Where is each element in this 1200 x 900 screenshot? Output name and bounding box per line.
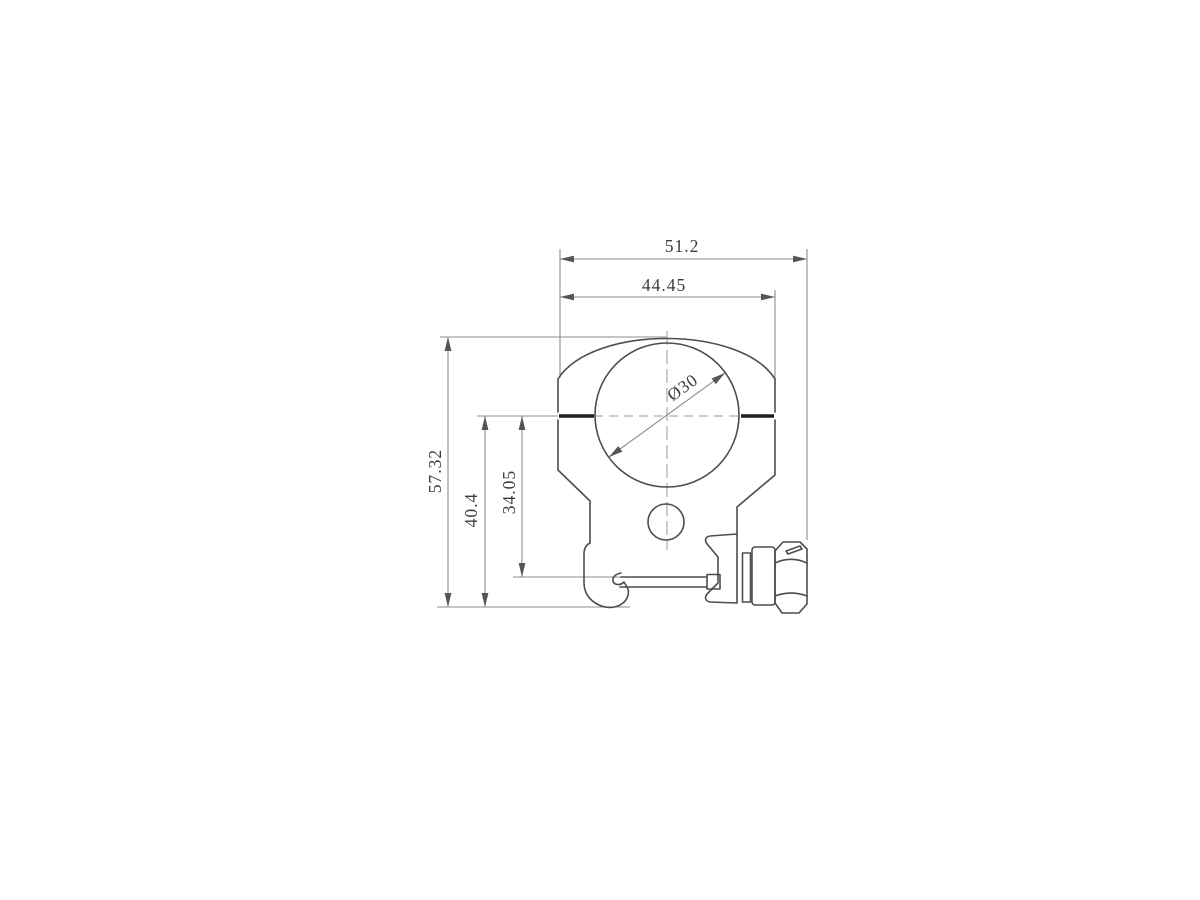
ring-right-wall [737,379,775,535]
arrowhead [793,256,807,263]
arrowhead [519,563,526,577]
arrowhead [712,373,725,384]
dimension-labels: 51.2 44.45 57.32 40.4 34.05 Ø30 [425,236,702,527]
arrowhead [761,294,775,301]
clamp-bolt [620,577,707,587]
ring-left-wall [558,379,590,543]
arrowhead [482,416,489,430]
arrowhead [560,256,574,263]
drawing-canvas: 51.2 44.45 57.32 40.4 34.05 Ø30 [0,0,1200,900]
hex-nut-chamfer-notch [786,546,802,554]
scope-ring-technical-drawing: 51.2 44.45 57.32 40.4 34.05 Ø30 [0,0,1200,900]
arrowhead [560,294,574,301]
hex-nut-facet-lines [775,559,807,596]
spacer-plate [743,553,751,602]
label-bore-diameter: Ø30 [663,369,702,405]
arrowhead [609,446,622,457]
label-base-to-split-height: 40.4 [461,493,481,528]
right-clamp-jaw [706,534,737,603]
arrowhead [482,593,489,607]
label-overall-height: 57.32 [425,449,445,493]
base-hole [648,504,684,540]
left-clamp-claw [584,543,628,607]
arrowhead [445,593,452,607]
arrowhead [519,416,526,430]
arrowhead [445,337,452,351]
label-rail-to-split-height: 34.05 [499,470,519,514]
label-ring-outer-width: 44.45 [642,275,686,295]
washer [752,547,775,605]
label-overall-width: 51.2 [665,236,700,256]
